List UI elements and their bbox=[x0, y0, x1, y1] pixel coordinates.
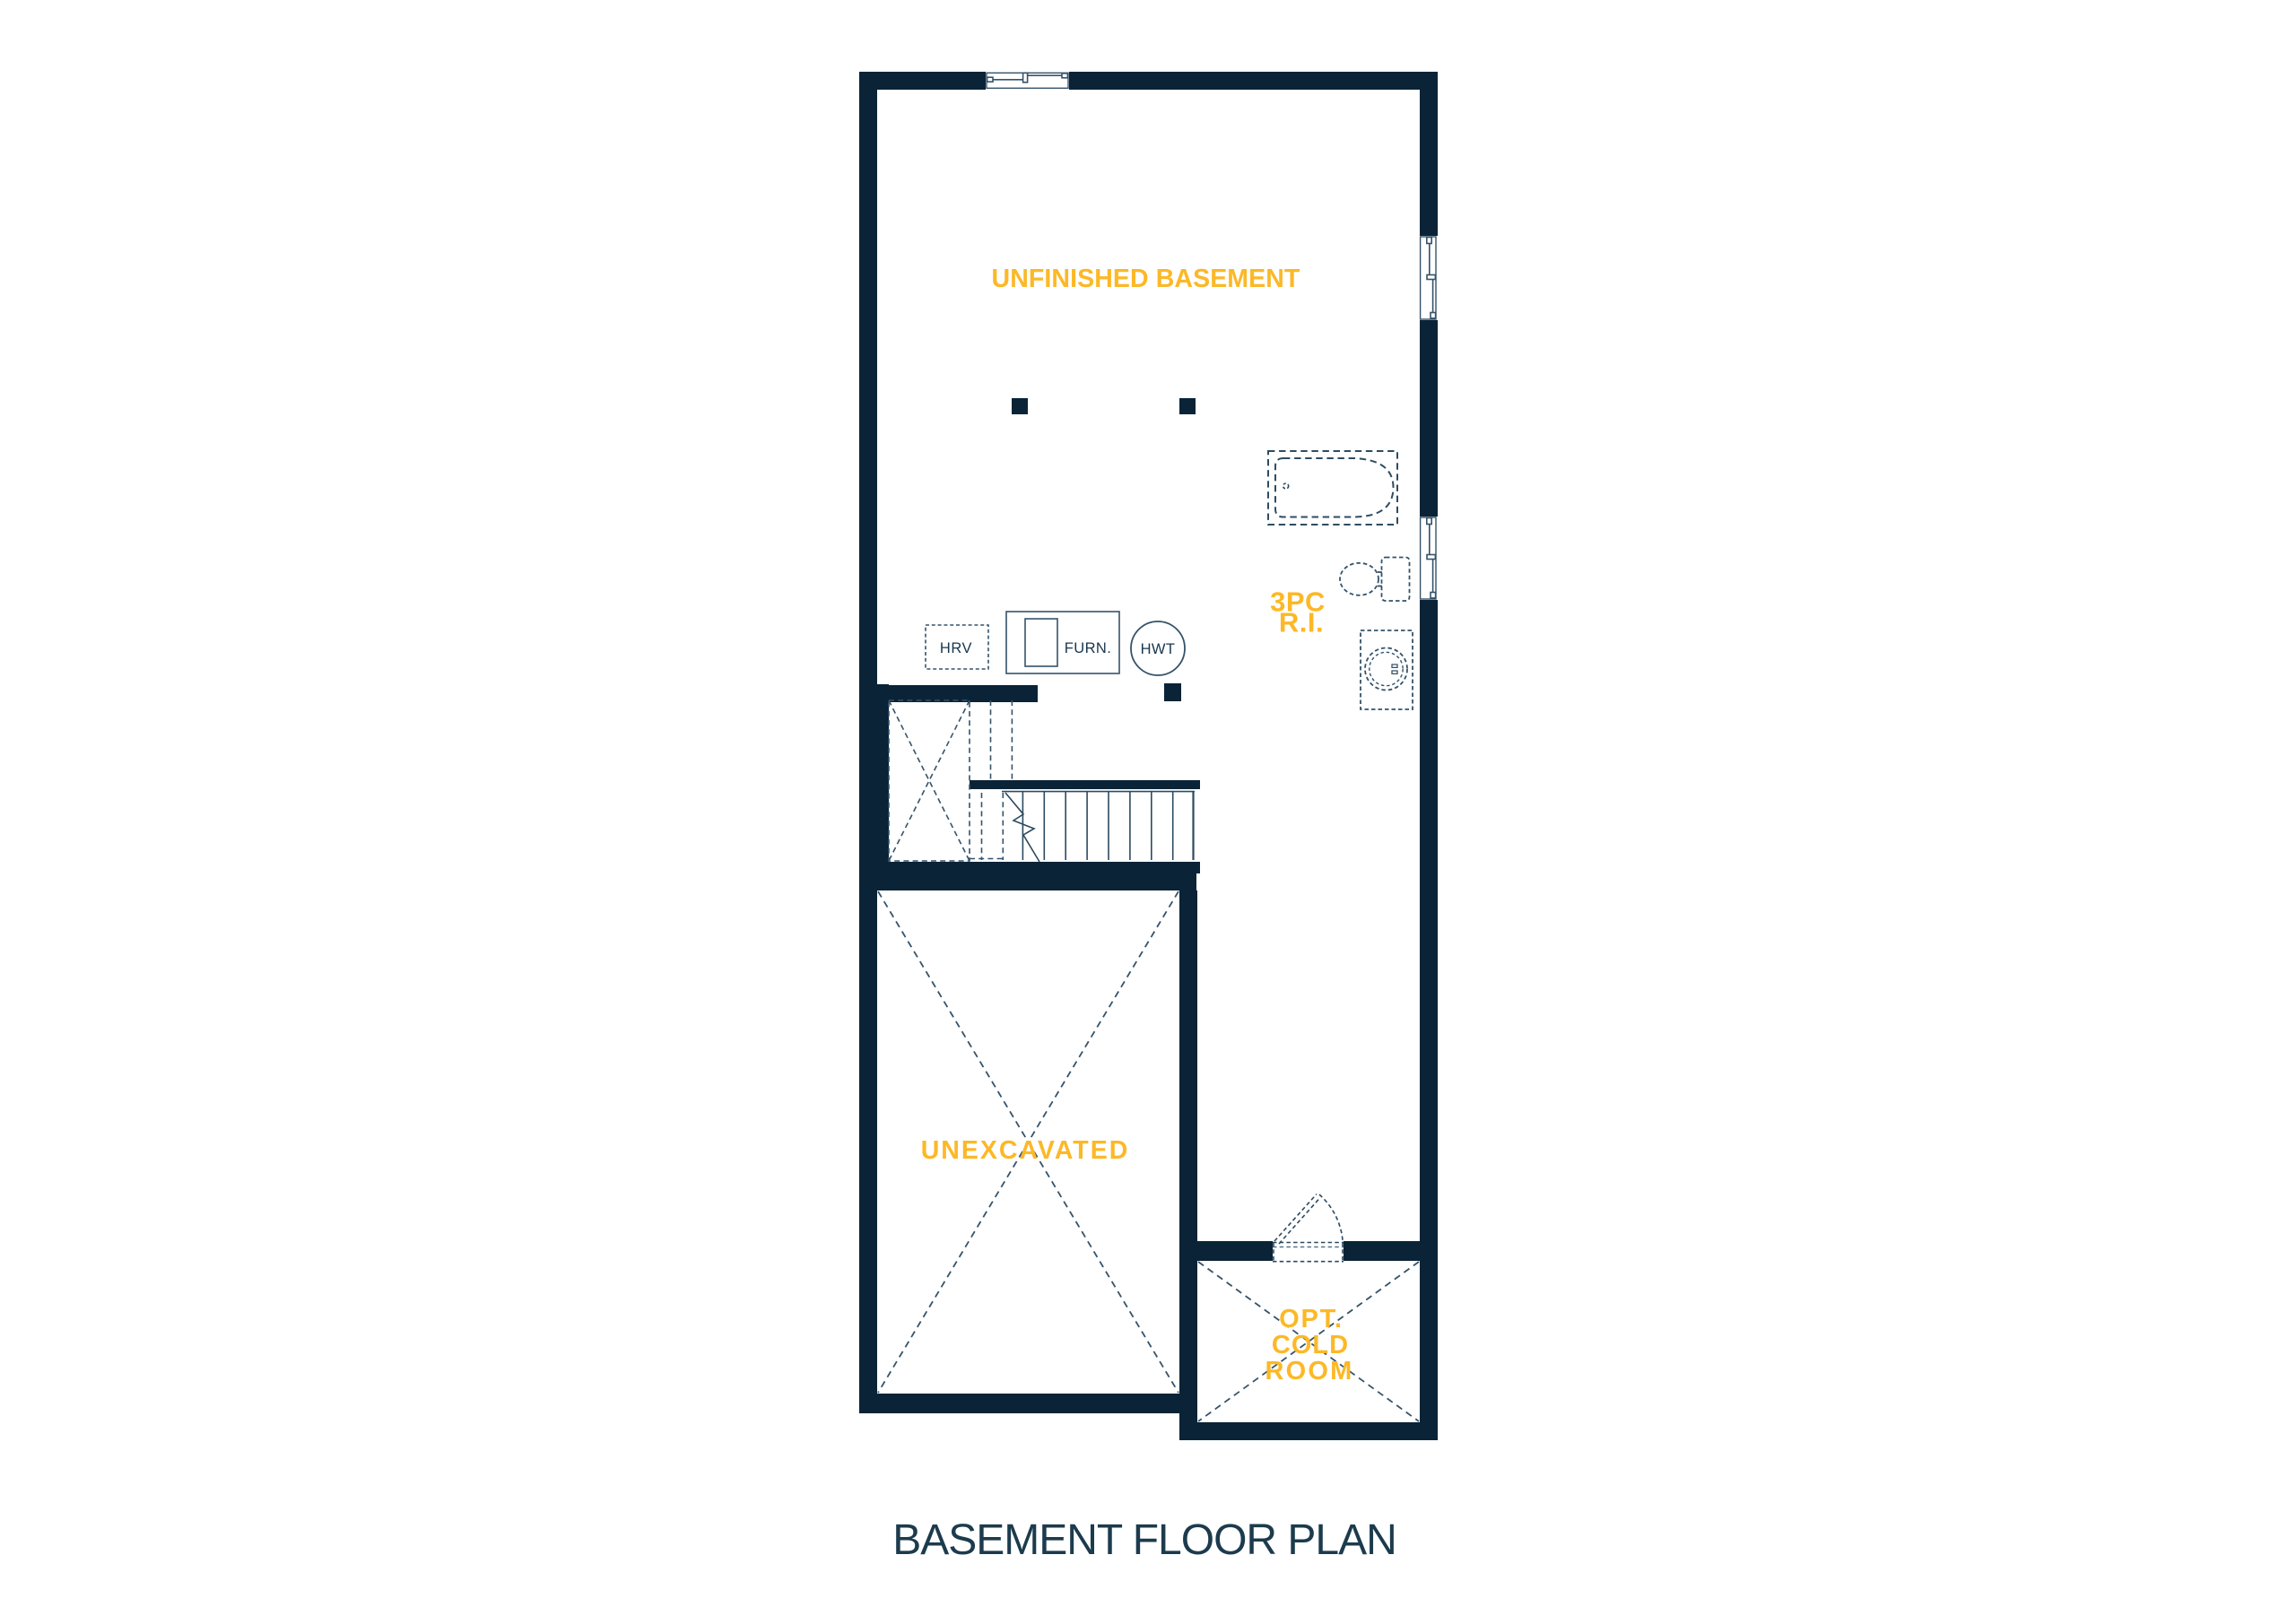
svg-text:UNEXCAVATED: UNEXCAVATED bbox=[921, 1136, 1130, 1165]
svg-text:FURN.: FURN. bbox=[1065, 640, 1111, 656]
svg-text:HWT: HWT bbox=[1141, 641, 1176, 657]
svg-text:R.I.: R.I. bbox=[1279, 607, 1324, 638]
svg-text:UNFINISHED BASEMENT: UNFINISHED BASEMENT bbox=[992, 265, 1300, 293]
svg-text:COLD: COLD bbox=[1272, 1331, 1349, 1359]
svg-text:OPT.: OPT. bbox=[1279, 1305, 1344, 1333]
svg-text:BASEMENT FLOOR PLAN: BASEMENT FLOOR PLAN bbox=[892, 1516, 1396, 1564]
svg-text:ROOM: ROOM bbox=[1265, 1357, 1353, 1385]
svg-text:HRV: HRV bbox=[940, 640, 972, 656]
